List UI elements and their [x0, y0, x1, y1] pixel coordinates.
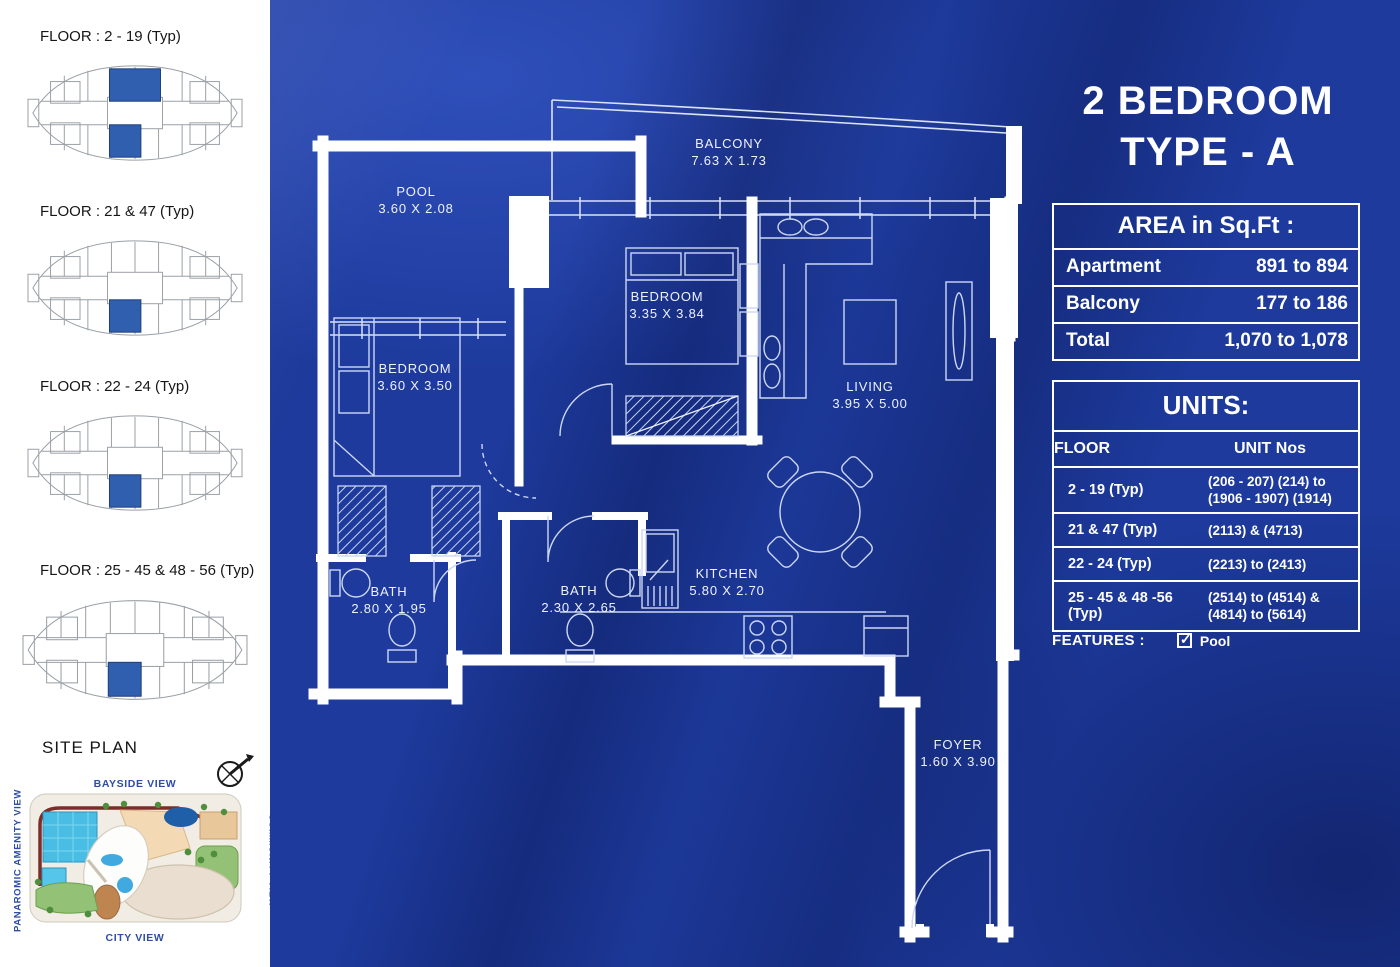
- keyplan-diagram: [27, 228, 243, 348]
- table-row: Total1,070 to 1,078: [1054, 324, 1358, 359]
- units-table: UNITS: FLOOR UNIT Nos 2 - 19 (Typ) (206 …: [1052, 380, 1360, 632]
- keyplan-diagram: [27, 53, 243, 173]
- room-label-bedroom2: BEDROOM3.35 X 3.84: [629, 288, 704, 322]
- keyplan-label: FLOOR : 25 - 45 & 48 - 56 (Typ): [0, 562, 270, 579]
- table-row: Apartment891 to 894: [1054, 250, 1358, 287]
- area-table: AREA in Sq.Ft : Apartment891 to 894 Balc…: [1052, 203, 1360, 361]
- keyplan-block-2: FLOOR : 21 & 47 (Typ): [0, 203, 270, 348]
- table-row: Balcony177 to 186: [1054, 287, 1358, 324]
- keyplan-block-3: FLOOR : 22 - 24 (Typ): [0, 378, 270, 523]
- view-label-bayside: BAYSIDE VIEW: [0, 778, 270, 790]
- pool-checkbox: ✓: [1177, 633, 1192, 648]
- room-label-bedroom1: BEDROOM3.60 X 3.50: [377, 360, 452, 394]
- page-title: 2 BEDROOM TYPE - A: [1042, 76, 1374, 178]
- keyplan-label: FLOOR : 21 & 47 (Typ): [0, 203, 270, 220]
- features-label: FEATURES :: [1052, 632, 1145, 649]
- view-label-city: CITY VIEW: [0, 932, 270, 944]
- floorplan-brochure: FLOOR : 2 - 19 (Typ) FLOOR : 21 & 47 (Ty…: [0, 0, 1400, 967]
- feature-pool-label: Pool: [1200, 633, 1230, 649]
- table-row: 2 - 19 (Typ) (206 - 207) (214) to (1906 …: [1054, 468, 1358, 514]
- check-icon: ✓: [1180, 631, 1192, 648]
- siteplan-title: SITE PLAN: [42, 738, 138, 758]
- room-label-bath1: BATH2.80 X 1.95: [351, 583, 426, 617]
- room-label-foyer: FOYER1.60 X 3.90: [920, 736, 995, 770]
- table-row: 25 - 45 & 48 -56 (Typ) (2514) to (4514) …: [1054, 582, 1358, 630]
- siteplan-image: [28, 790, 244, 928]
- room-label-bath2: BATH2.30 X 2.65: [541, 582, 616, 616]
- keyplan-block-4: FLOOR : 25 - 45 & 48 - 56 (Typ): [0, 562, 270, 713]
- room-label-living: LIVING3.95 X 5.00: [832, 378, 907, 412]
- walls: [314, 141, 1014, 937]
- keyplan-label: FLOOR : 22 - 24 (Typ): [0, 378, 270, 395]
- keyplan-label: FLOOR : 2 - 19 (Typ): [0, 28, 270, 45]
- keyplan-sidebar: FLOOR : 2 - 19 (Typ) FLOOR : 21 & 47 (Ty…: [0, 0, 270, 967]
- view-label-panoramic-amenity: PANAROMIC AMENITY VIEW: [13, 781, 24, 941]
- features-row: FEATURES : ✓ Pool: [1052, 632, 1230, 649]
- blueprint-panel: BALCONY7.63 X 1.73 POOL3.60 X 2.08 BEDRO…: [270, 0, 1400, 967]
- keyplan-diagram: [22, 587, 248, 713]
- table-row: 21 & 47 (Typ) (2113) & (4713): [1054, 514, 1358, 548]
- table-row: 22 - 24 (Typ) (2213) to (2413): [1054, 548, 1358, 582]
- keyplan-diagram: [27, 403, 243, 523]
- units-table-columns: FLOOR UNIT Nos: [1054, 432, 1358, 468]
- area-table-title: AREA in Sq.Ft :: [1054, 205, 1358, 250]
- room-label-kitchen: KITCHEN5.80 X 2.70: [689, 565, 764, 599]
- units-table-title: UNITS:: [1054, 382, 1358, 432]
- keyplan-block-1: FLOOR : 2 - 19 (Typ): [0, 28, 270, 173]
- room-label-balcony: BALCONY7.63 X 1.73: [691, 135, 766, 169]
- room-label-pool: POOL3.60 X 2.08: [378, 183, 453, 217]
